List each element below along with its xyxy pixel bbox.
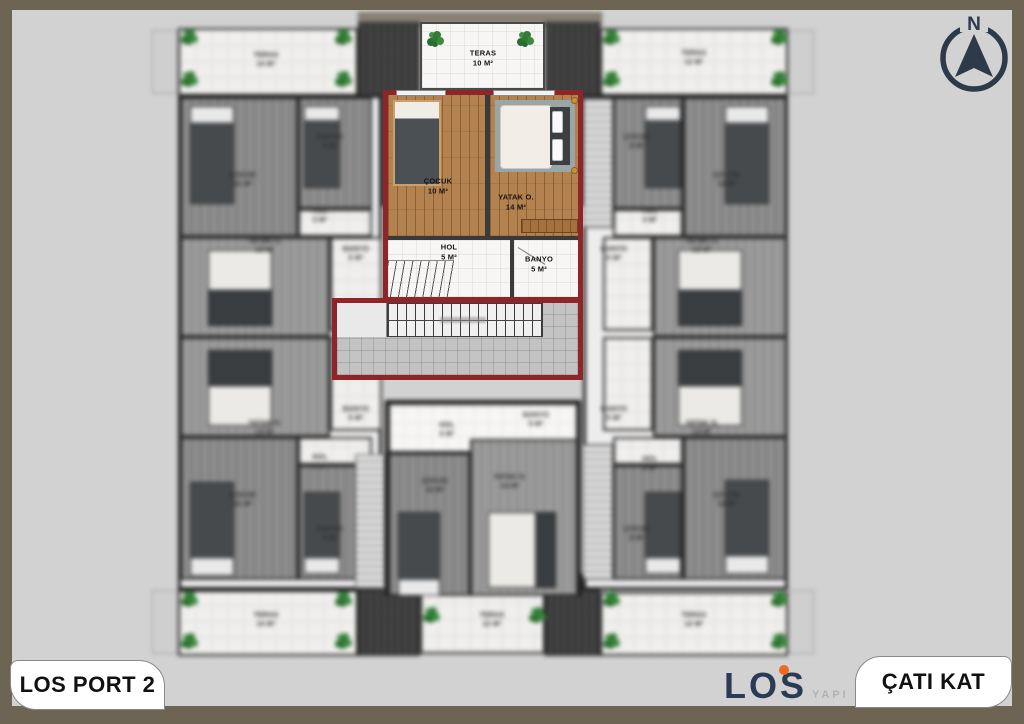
project-name-tab: LOS PORT 2 xyxy=(10,660,165,710)
compass-north-letter: N xyxy=(967,14,981,35)
pillow xyxy=(552,139,563,161)
dresser xyxy=(521,219,578,233)
double-bed xyxy=(500,105,552,169)
logo-orange-dot-icon xyxy=(779,665,789,675)
stair-dimension-text xyxy=(440,317,486,323)
single-bed xyxy=(393,100,441,186)
room-label: ÇOCUK10 M² xyxy=(424,176,453,196)
window xyxy=(493,90,555,96)
logo-suffix: YAPI xyxy=(812,689,849,701)
lamp xyxy=(571,97,578,104)
room-label: BANYO5 M² xyxy=(525,254,553,274)
pillow xyxy=(552,111,563,133)
project-name-label: LOS PORT 2 xyxy=(20,672,156,698)
focused-stairwell xyxy=(332,298,583,380)
room-label: HOL5 M² xyxy=(441,242,457,262)
floor-name-label: ÇATI KAT xyxy=(882,669,985,695)
floor-plan: TERAS14 M² TERAS12 M² TERAS14 M² TERAS12… xyxy=(170,14,795,658)
floor-name-tab: ÇATI KAT xyxy=(855,656,1012,708)
stair-steps xyxy=(388,260,454,298)
lamp xyxy=(571,167,578,174)
floor-plan-page: TERAS14 M² TERAS12 M² TERAS14 M² TERAS12… xyxy=(0,0,1024,724)
plant-icon xyxy=(522,36,528,42)
compass-icon: N xyxy=(932,12,1016,96)
plan-canvas: TERAS14 M² TERAS12 M² TERAS14 M² TERAS12… xyxy=(12,10,1012,706)
plant-icon xyxy=(432,36,438,42)
focused-apartment-unit: TERAS10 M² xyxy=(170,14,795,658)
window xyxy=(396,90,446,96)
compass-north-indicator: N xyxy=(932,12,1016,96)
room-label: YATAK O.14 M² xyxy=(498,192,534,212)
los-yapi-logo: LOS YAPI xyxy=(724,654,849,704)
stair-landing xyxy=(337,303,387,337)
logo-wordmark: LOS xyxy=(724,668,807,704)
stair-treads xyxy=(387,303,543,337)
room-label: TERAS10 M² xyxy=(470,48,496,68)
